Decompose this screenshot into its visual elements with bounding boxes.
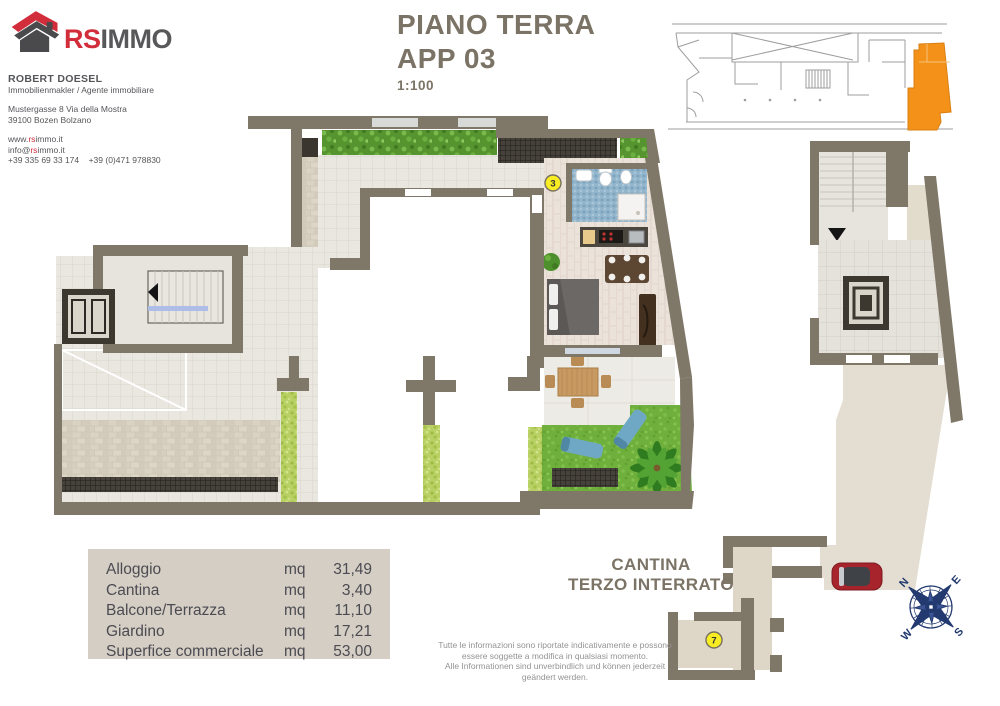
area-unit: mq <box>284 581 322 602</box>
car-icon <box>832 563 882 590</box>
bed <box>547 279 599 335</box>
area-label: Alloggio <box>106 560 284 581</box>
lawn-grate <box>552 468 618 487</box>
disclaimer: Tutte le informazioni sono riportate ind… <box>405 640 705 682</box>
cellar-marker-label: 7 <box>711 636 716 647</box>
cellar-section-label: CANTINA TERZO INTERRATO <box>541 555 761 595</box>
area-unit: mq <box>284 642 322 663</box>
walkway-tiles-side <box>318 190 360 268</box>
bidet-icon <box>621 170 632 184</box>
shower-icon <box>618 194 645 220</box>
table-row: Superfice commerciale mq 53,00 <box>106 642 372 663</box>
paver-path <box>302 157 318 247</box>
cobblestone-pavers <box>58 420 280 482</box>
phone-numbers: +39 335 69 33 174 +39 (0)471 978830 <box>8 155 161 166</box>
main-floor-plan: 3 <box>54 116 694 515</box>
agent-name: ROBERT DOESEL <box>8 74 161 85</box>
right-building-section <box>782 141 963 590</box>
area-label: Giardino <box>106 622 284 643</box>
area-value: 53,00 <box>322 642 372 663</box>
sink-icon <box>576 170 592 181</box>
cellar-marker-badge: 7 <box>706 632 722 648</box>
page-title-line2: APP 03 <box>397 42 595 76</box>
hedge-left <box>281 392 297 502</box>
compass-west-label: W <box>899 627 915 643</box>
chair <box>545 375 555 388</box>
area-value: 3,40 <box>322 581 372 602</box>
title-block: PIANO TERRA APP 03 1:100 <box>397 8 595 93</box>
driveway-ramp <box>782 365 951 590</box>
area-unit: mq <box>284 622 322 643</box>
dining-table <box>605 255 649 283</box>
chair <box>571 356 584 366</box>
table-row: Cantina mq 3,40 <box>106 581 372 602</box>
page-title-line1: PIANO TERRA <box>397 8 595 42</box>
elevator-icon <box>62 289 115 344</box>
brand-red-part: RS <box>64 24 101 54</box>
potted-plant-icon <box>542 253 560 271</box>
area-value: 31,49 <box>322 560 372 581</box>
compass-east-label: E <box>950 573 964 586</box>
kitchen-counter <box>580 227 648 247</box>
chair <box>601 375 611 388</box>
elevator-right-icon <box>843 276 889 330</box>
area-label: Balcone/Terrazza <box>106 601 284 622</box>
table-row: Alloggio mq 31,49 <box>106 560 372 581</box>
area-value: 11,10 <box>322 601 372 622</box>
disclaimer-line4: geändert werden. <box>405 672 705 683</box>
palm-tree-icon <box>630 441 684 495</box>
pillow <box>549 309 558 330</box>
disclaimer-line3: Alle Informationen sind unverbindlich un… <box>405 661 705 672</box>
agent-role: Immobilienmakler / Agente immobiliare <box>8 85 161 96</box>
email-link[interactable]: info@rsimmo.it <box>8 145 161 156</box>
apartment-marker-badge: 3 <box>545 175 561 191</box>
stair-flight <box>148 271 223 323</box>
compass-south-label: S <box>952 626 966 639</box>
hedge-strip-top <box>322 130 497 155</box>
area-unit: mq <box>284 601 322 622</box>
toilet-icon <box>600 172 612 186</box>
address-line2: 39100 Bozen Bolzano <box>8 115 161 126</box>
kitchen-sink-icon <box>629 231 644 243</box>
area-label: Cantina <box>106 581 284 602</box>
disclaimer-line1: Tutte le informazioni sono riportate ind… <box>405 640 705 651</box>
cellar-label-line1: CANTINA <box>541 555 761 575</box>
apartment-marker-label: 3 <box>550 179 555 190</box>
cooktop-icon <box>599 230 623 243</box>
website-link[interactable]: www.rsimmo.it <box>8 134 161 145</box>
pillow <box>549 284 558 305</box>
table-row: Giardino mq 17,21 <box>106 622 372 643</box>
stair-glass-edge <box>148 306 208 311</box>
contact-block: ROBERT DOESEL Immobilienmakler / Agente … <box>8 74 161 166</box>
area-unit: mq <box>284 560 322 581</box>
bush-top-right <box>620 138 648 160</box>
disclaimer-line2: essere soggette a modifica in qualsiasi … <box>405 651 705 662</box>
overview-plan <box>668 24 953 130</box>
drainage-grate <box>60 477 278 492</box>
cellar-label-line2: TERZO INTERRATO <box>541 575 761 595</box>
plan-scale: 1:100 <box>397 78 595 93</box>
area-table: Alloggio mq 31,49 Cantina mq 3,40 Balcon… <box>88 549 390 659</box>
brand-wordmark: RSIMMO <box>64 26 172 53</box>
highlighted-unit-overlay <box>908 43 951 130</box>
hedge-middle <box>423 425 440 503</box>
area-label: Superfice commerciale <box>106 642 284 663</box>
chair <box>571 398 584 408</box>
house-logo-icon <box>10 6 60 58</box>
table-row: Balcone/Terrazza mq 11,10 <box>106 601 372 622</box>
cutting-board <box>583 230 595 244</box>
logo: RSIMMO <box>10 6 172 58</box>
address-line1: Mustergasse 8 Via della Mostra <box>8 104 161 115</box>
doormat <box>301 138 318 157</box>
area-value: 17,21 <box>322 622 372 643</box>
brand-dark-part: IMMO <box>101 24 173 54</box>
